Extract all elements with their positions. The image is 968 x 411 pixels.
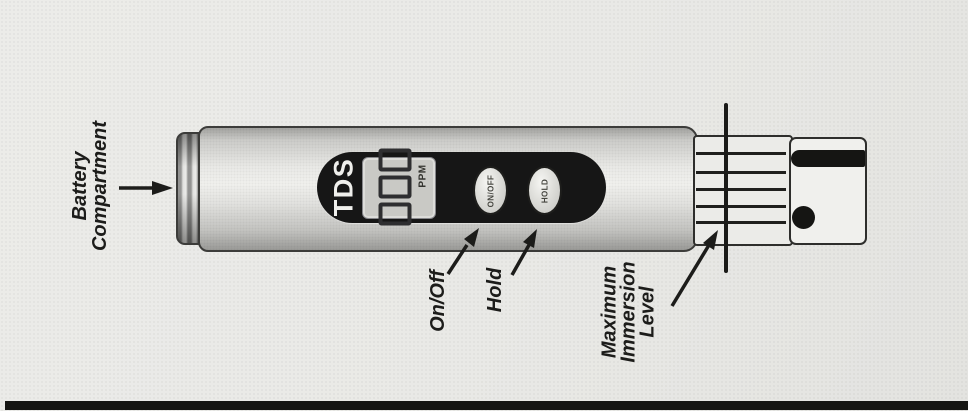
lcd-digits — [379, 149, 412, 226]
on-off-label-text: On/Off — [428, 270, 448, 332]
hold-label: Hold — [485, 268, 505, 312]
lcd-digit — [379, 203, 412, 226]
immersion-graduation-line — [696, 171, 786, 174]
probe-electrode-dot — [792, 206, 815, 229]
max-immersion-arrow-shaft — [672, 245, 709, 306]
brand-label: TDS — [329, 158, 360, 217]
tds-meter-diagram: Battery Compartment TDS PPM ON/OFF HOLD … — [0, 0, 968, 411]
immersion-graduation-line — [696, 152, 786, 155]
faceplate-panel — [317, 152, 606, 223]
lcd-digit — [379, 176, 412, 199]
on-off-button-label: ON/OFF — [486, 174, 495, 207]
probe-electrode-bar — [791, 150, 865, 167]
on-off-label: On/Off — [428, 270, 448, 332]
battery-arrow-head — [152, 181, 173, 195]
lcd-unit-label: PPM — [418, 164, 429, 187]
hold-button-label: HOLD — [540, 178, 549, 202]
on-off-button: ON/OFF — [473, 166, 508, 215]
max-immersion-marker-line — [724, 103, 728, 273]
hold-label-text: Hold — [485, 268, 505, 312]
immersion-graduation-line — [696, 188, 786, 191]
battery-compartment-label-line2: Compartment — [90, 121, 110, 251]
immersion-graduation-line — [696, 205, 786, 208]
battery-compartment-label-line1: Battery — [70, 121, 90, 251]
page-bottom-rule — [5, 401, 968, 410]
max-immersion-label-line3: Level — [639, 261, 658, 362]
battery-compartment-label: Battery Compartment — [70, 121, 110, 251]
hold-button: HOLD — [527, 166, 562, 215]
max-immersion-label: Maximum Immersion Level — [601, 261, 658, 362]
lcd-digit — [379, 149, 412, 172]
immersion-graduation-line — [696, 221, 786, 224]
